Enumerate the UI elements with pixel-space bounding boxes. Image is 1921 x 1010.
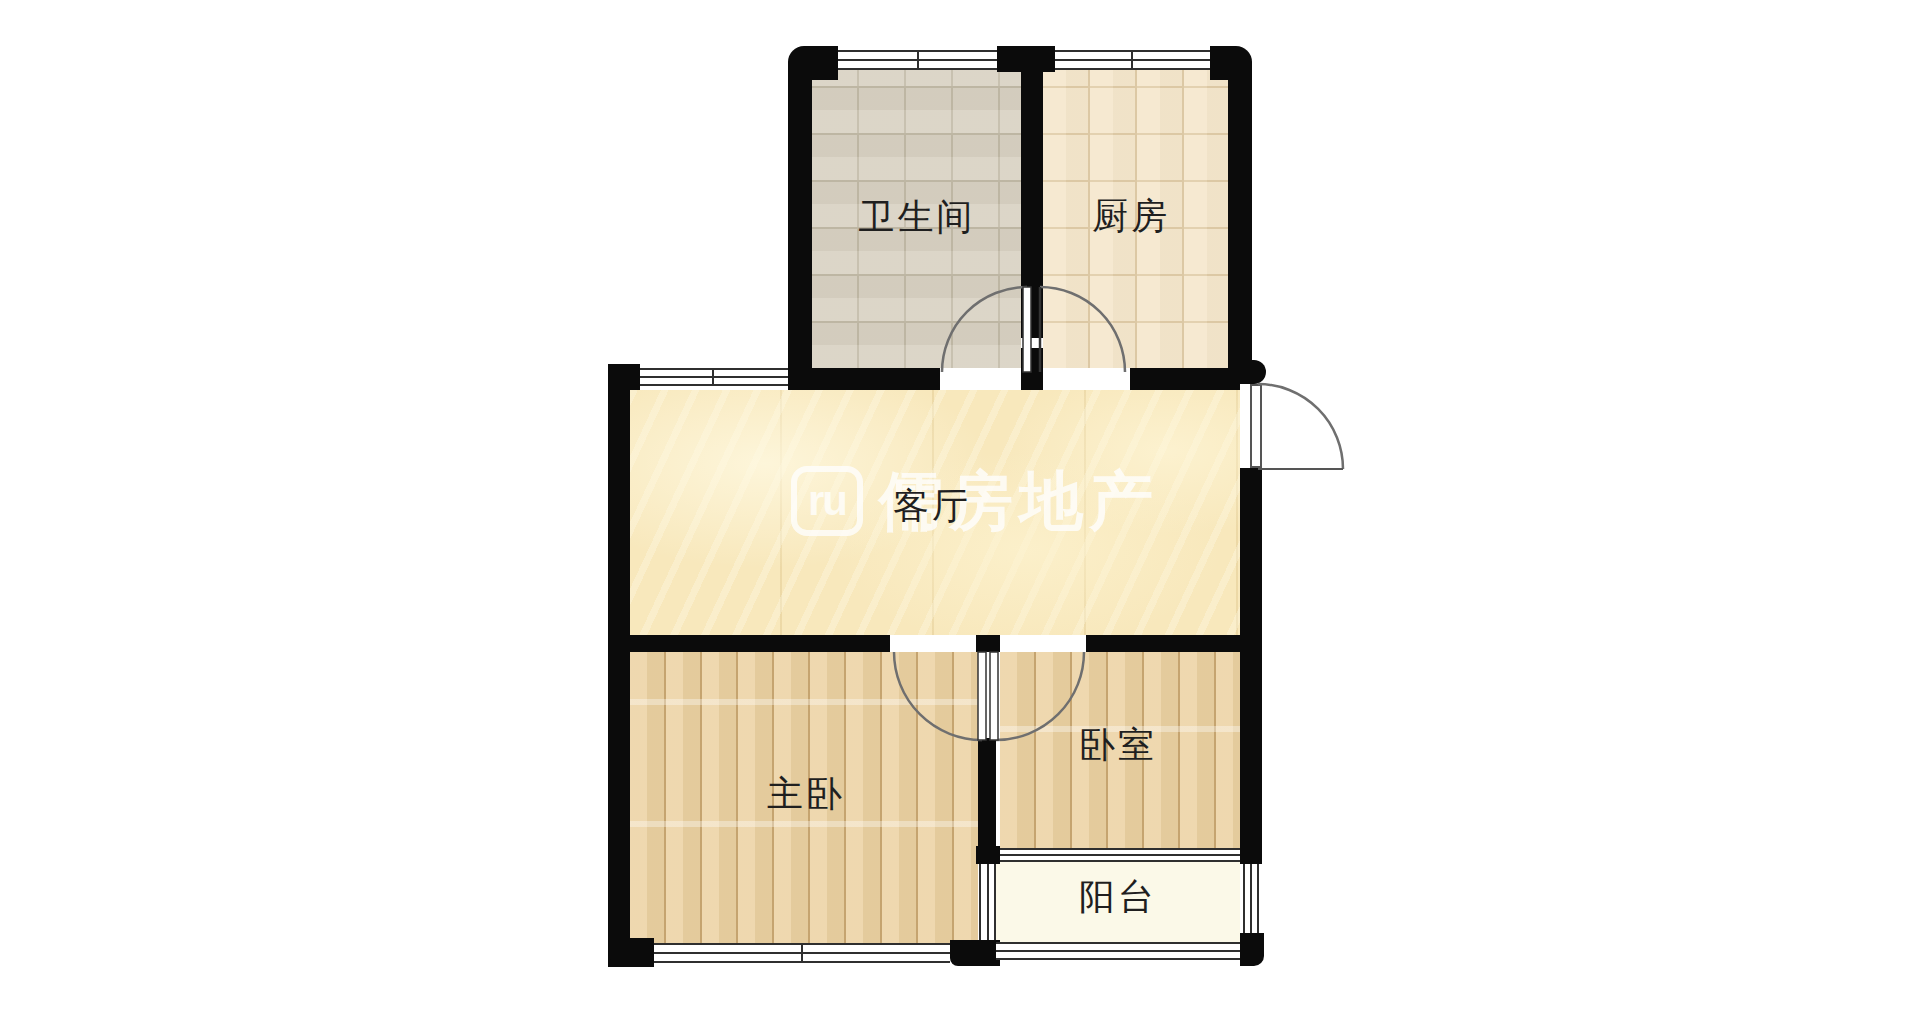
master-bedroom-door-leaf [978,652,986,740]
master-bedroom-label: 主卧 [767,770,845,819]
bathroom-top-window [838,50,997,70]
entry-door-frame [1250,384,1262,468]
wall-segment [1238,360,1266,384]
bathroom-label: 卫生间 [859,193,976,242]
balcony-bottom-window [996,942,1240,960]
living-room-top-window [640,368,788,386]
wall-segment [1086,635,1262,652]
wall-segment [608,938,654,967]
bedroom-door-leaf [990,652,998,740]
wall-segment [978,738,996,853]
brand-watermark: ru 儒房地产 [791,466,1159,536]
wall-segment [1240,468,1262,864]
bedroom-label: 卧室 [1079,721,1157,770]
wall-segment [1240,933,1264,966]
wall-segment [1228,72,1252,368]
balcony-left-window [979,864,996,940]
wall-segment [1021,348,1043,390]
floor-plan: ru 儒房地产 [0,0,1921,1010]
wall-segment [630,635,890,652]
wall-segment [950,940,1000,966]
balcony-sliding-door [1000,848,1240,862]
wall-segment [976,846,1000,864]
window-mullion [712,370,714,384]
wall-segment [608,364,630,967]
wall-segment [788,72,812,390]
balcony-label: 阳台 [1079,873,1157,922]
wall-segment [788,368,940,390]
wall-segment [976,635,1000,652]
wall-segment [1130,368,1240,390]
balcony-right-window [1243,864,1259,933]
window-mullion [917,52,919,68]
window-mullion [1131,52,1133,68]
kitchen-top-window [1055,50,1210,70]
master-bedroom-bottom-window [654,943,950,963]
brand-logo: ru [791,466,863,536]
kitchen-label: 厨房 [1092,192,1170,241]
wall-segment [1021,72,1043,338]
wall-segment [997,46,1055,72]
entry-door-arc [1258,384,1343,469]
living-room-label: 客厅 [893,482,971,531]
window-mullion [801,945,803,961]
